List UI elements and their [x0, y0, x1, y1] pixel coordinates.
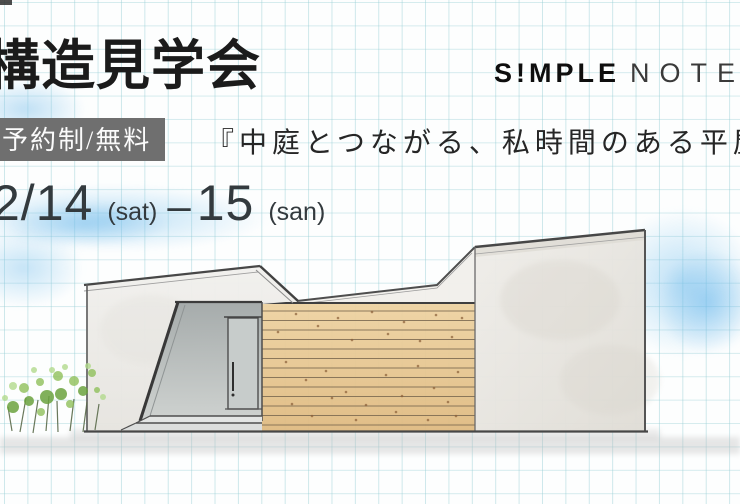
- event-flyer: 構造見学会 S!MPLE NOTE 予約制/無料 『中庭とつながる、私時間のある…: [0, 0, 740, 504]
- right-block: [475, 230, 660, 431]
- brand-logo: S!MPLE NOTE: [494, 58, 740, 89]
- wood-slat-wall: [262, 302, 475, 432]
- brand-logo-light: NOTE: [630, 58, 740, 89]
- event-date: 2/14 (sat) – 15 (san): [0, 174, 325, 232]
- ground-wash: [0, 429, 740, 454]
- date-day2-label: (san): [268, 198, 325, 227]
- date-separator: –: [167, 182, 190, 230]
- middle-building: [262, 247, 475, 304]
- date-day1-label: (sat): [107, 198, 157, 227]
- reservation-badge: 予約制/無料: [0, 118, 165, 161]
- event-title: 構造見学会: [0, 38, 261, 95]
- date-day1: 2/14: [0, 174, 93, 232]
- brand-logo-bold: S!MPLE: [494, 58, 620, 89]
- event-tagline: 『中庭とつながる、私時間のある平屋』: [206, 121, 740, 161]
- date-day2: 15: [197, 174, 255, 232]
